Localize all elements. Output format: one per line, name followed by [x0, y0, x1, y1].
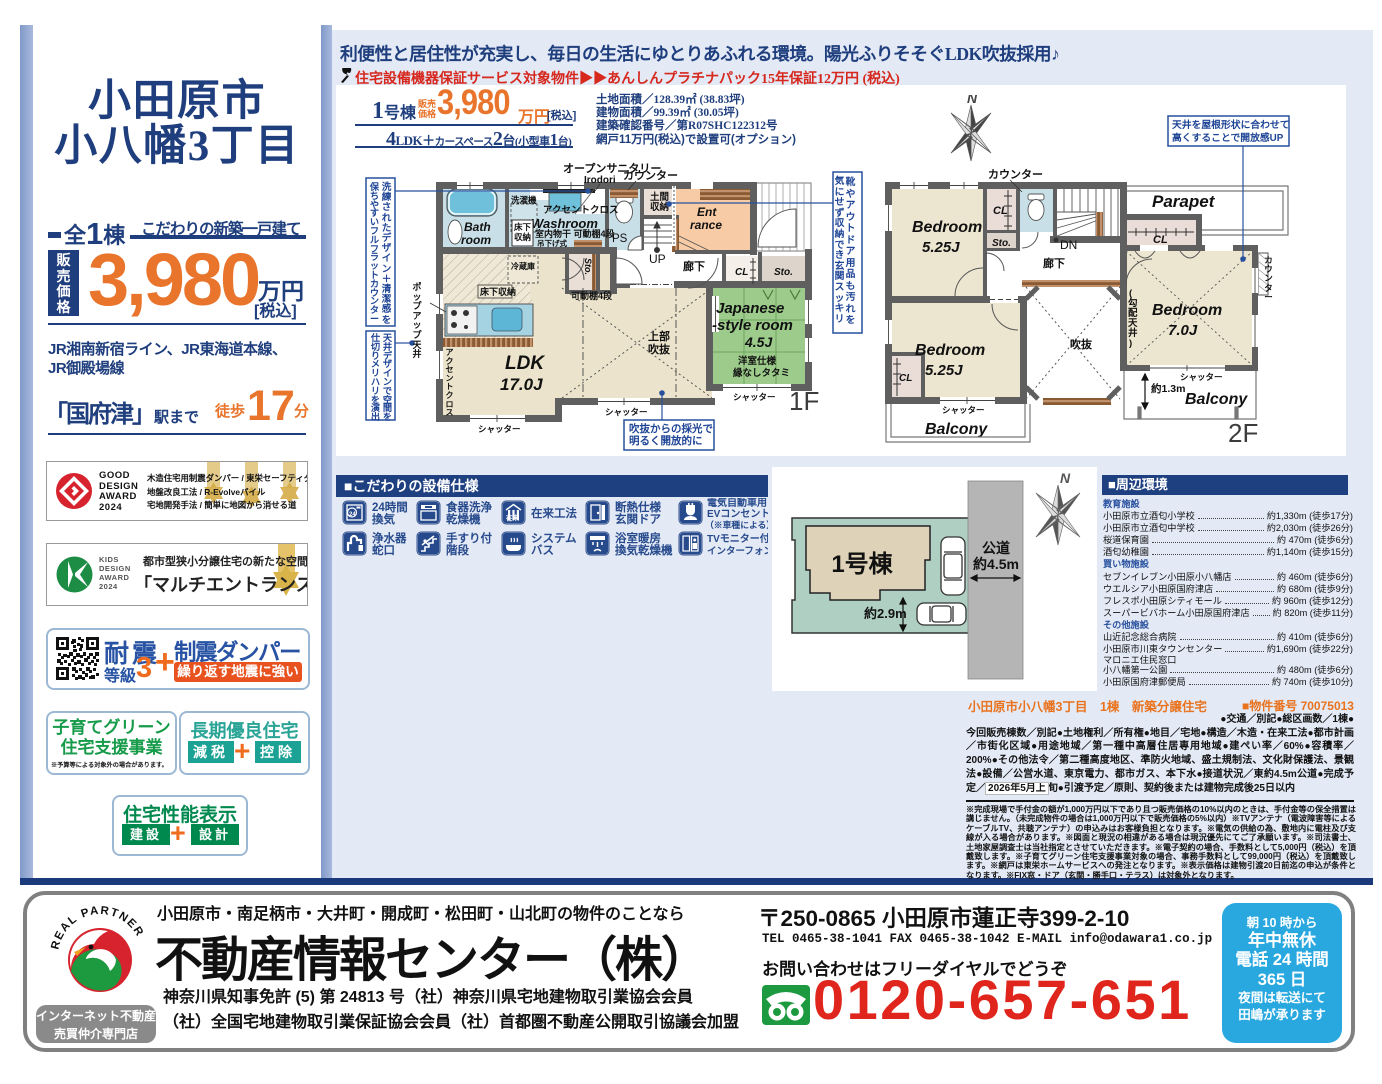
svg-text:1号棟: 1号棟 [831, 551, 893, 578]
svg-text:PS: PS [612, 233, 628, 245]
svg-text:Sto.: Sto. [774, 267, 793, 278]
svg-text:高くすることで開放感UP: 高くすることで開放感UP [1172, 131, 1284, 144]
svg-text:Bedroom: Bedroom [1152, 302, 1222, 319]
svg-text:床下収納: 床下収納 [480, 286, 516, 297]
svg-text:在来工法: 在来工法 [531, 506, 577, 520]
svg-text:シャッター: シャッター [733, 392, 776, 402]
svg-text:電気自動車用: 電気自動車用 [707, 498, 767, 509]
svg-text:CL: CL [1153, 234, 1168, 246]
svg-text:吹抜からの採光で: 吹抜からの採光で [629, 422, 713, 435]
svg-text:上部: 上部 [648, 329, 670, 343]
svg-text:浄水器: 浄水器 [372, 531, 407, 545]
svg-text:アクセントクロス: アクセントクロス [543, 205, 619, 216]
svg-text:Bath: Bath [464, 220, 491, 234]
svg-text:換気乾燥機: 換気乾燥機 [615, 543, 673, 557]
svg-text:断熱仕様: 断熱仕様 [615, 500, 661, 514]
svg-text:Japanese: Japanese [716, 300, 784, 317]
svg-text:約1.3m: 約1.3m [1151, 382, 1185, 395]
svg-text:洗濯機: 洗濯機 [511, 195, 537, 205]
svg-text:2F: 2F [1228, 418, 1258, 448]
svg-text:N: N [1060, 470, 1071, 486]
svg-text:吊下げ式: 吊下げ式 [537, 238, 567, 248]
svg-text:-style room: -style room [712, 317, 793, 334]
svg-text:シャッター: シャッター [605, 407, 648, 417]
svg-text:1F: 1F [789, 386, 819, 416]
svg-text:廊下: 廊下 [1043, 256, 1065, 270]
svg-text:LDK: LDK [505, 353, 545, 374]
svg-text:17.0J: 17.0J [500, 375, 543, 394]
svg-text:5.25J: 5.25J [925, 362, 963, 379]
svg-text:Ent: Ent [697, 205, 717, 219]
svg-text:Bedroom: Bedroom [915, 342, 985, 359]
svg-text:縁なしタタミ: 縁なしタタミ [733, 367, 790, 379]
svg-text:吹抜: 吹抜 [648, 342, 671, 356]
svg-text:換気: 換気 [372, 512, 395, 526]
svg-text:階段: 階段 [446, 543, 469, 557]
svg-text:Parapet: Parapet [1152, 192, 1216, 211]
svg-text:Sto.: Sto. [583, 258, 593, 275]
svg-text:食器洗浄: 食器洗浄 [446, 500, 492, 514]
svg-text:Balcony: Balcony [1185, 391, 1248, 408]
svg-text:乾燥機: 乾燥機 [446, 512, 481, 526]
svg-text:rance: rance [690, 218, 722, 232]
svg-text:収納: 収納 [650, 201, 669, 213]
svg-text:カウンター: カウンター [623, 169, 678, 182]
svg-text:CL: CL [735, 267, 748, 278]
svg-text:DN: DN [1060, 238, 1077, 252]
svg-text:室内物干 可動棚4段: 室内物干 可動棚4段 [535, 228, 616, 239]
svg-text:シャッター: シャッター [478, 424, 521, 434]
svg-text:洋室仕様: 洋室仕様 [738, 355, 777, 367]
svg-text:インターフォン: インターフォン [707, 545, 768, 557]
svg-text:EVコンセント: EVコンセント [707, 508, 768, 520]
svg-text:シャッター: シャッター [1180, 372, 1223, 382]
svg-text:収納: 収納 [514, 232, 531, 242]
svg-text:手すり付: 手すり付 [446, 531, 492, 545]
svg-text:4.5J: 4.5J [744, 334, 773, 350]
svg-text:可動棚4段: 可動棚4段 [571, 290, 613, 301]
svg-text:24: 24 [349, 512, 356, 518]
svg-text:公道: 公道 [982, 540, 1010, 556]
svg-text:TVモニター付: TVモニター付 [707, 532, 768, 545]
svg-text:在来: 在来 [506, 513, 520, 522]
svg-text:24時間: 24時間 [372, 500, 408, 514]
svg-text:Balcony: Balcony [925, 421, 988, 438]
svg-text:廊下: 廊下 [683, 259, 705, 273]
svg-text:CL: CL [899, 373, 912, 384]
svg-text:床下: 床下 [514, 222, 532, 232]
svg-text:玄関ドア: 玄関ドア [615, 512, 661, 526]
svg-text:CL: CL [993, 205, 1008, 217]
svg-text:): ) [1129, 338, 1132, 349]
svg-text:システム: システム [531, 532, 577, 545]
svg-text:約4.5m: 約4.5m [973, 556, 1019, 572]
svg-text:明るく開放的に: 明るく開放的に [629, 434, 703, 447]
svg-text:冷蔵庫: 冷蔵庫 [511, 261, 535, 271]
svg-text:シャッター: シャッター [942, 405, 985, 415]
svg-text:room: room [461, 233, 491, 247]
svg-text:吹抜: 吹抜 [1070, 337, 1093, 351]
svg-text:Bedroom: Bedroom [912, 219, 982, 236]
svg-text:7.0J: 7.0J [1168, 322, 1198, 339]
svg-text:N: N [967, 95, 978, 106]
svg-text:UP: UP [649, 252, 666, 266]
svg-text:約2.9m: 約2.9m [864, 606, 907, 621]
svg-text:バス: バス [531, 544, 554, 557]
svg-text:（※車種による）: （※車種による） [705, 519, 768, 530]
svg-text:天井を屋根形状に合わせて: 天井を屋根形状に合わせて [1172, 118, 1290, 131]
svg-text:5.25J: 5.25J [922, 239, 960, 256]
svg-text:カウンター: カウンター [988, 168, 1043, 181]
svg-text:浴室暖房: 浴室暖房 [615, 531, 661, 545]
svg-text:Sto.: Sto. [992, 238, 1011, 249]
svg-text:蛇口: 蛇口 [372, 543, 395, 557]
